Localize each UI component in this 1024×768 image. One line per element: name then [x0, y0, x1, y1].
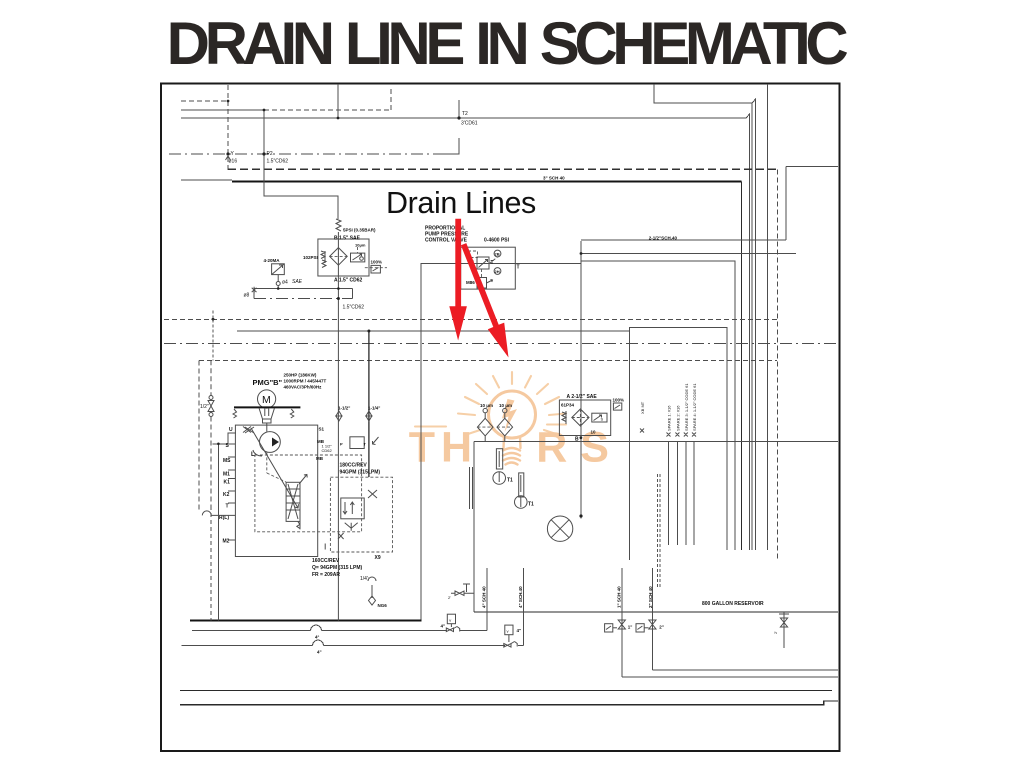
svg-text:2B: 2B [495, 252, 500, 257]
svg-text:T1: T1 [528, 502, 534, 508]
svg-text:0-4600 PSI: 0-4600 PSI [484, 238, 510, 244]
svg-text:L: L [251, 452, 255, 458]
svg-text:4": 4" [441, 624, 446, 629]
svg-text:Y: Y [506, 629, 509, 634]
svg-text:10: 10 [591, 430, 597, 435]
svg-text:SAE: SAE [292, 279, 303, 285]
svg-text:B: B [575, 437, 579, 443]
svg-text:ø8: ø8 [244, 293, 250, 299]
svg-text:4°: 4° [315, 635, 320, 640]
svg-text:K1: K1 [224, 480, 231, 486]
svg-text:Drain Lines: Drain Lines [386, 186, 536, 220]
svg-text:10 μm: 10 μm [480, 403, 493, 408]
svg-text:T: T [226, 504, 229, 510]
svg-text:460VAC/3Ph/60Hz: 460VAC/3Ph/60Hz [284, 385, 323, 390]
svg-text:2': 2' [773, 631, 778, 634]
svg-text:MS: MS [223, 458, 231, 464]
svg-text:10 μm: 10 μm [499, 403, 512, 408]
svg-text:1" SCH 40: 1" SCH 40 [616, 586, 621, 608]
svg-text:1": 1" [628, 625, 633, 630]
svg-text:2H: 2H [495, 269, 500, 274]
svg-text:Y: Y [231, 151, 235, 157]
svg-text:ø4: ø4 [282, 280, 288, 286]
svg-text:1.5"CD62: 1.5"CD62 [343, 305, 365, 311]
svg-text:T1: T1 [507, 478, 513, 484]
svg-text:Q= 94GPM (315 LPM): Q= 94GPM (315 LPM) [312, 565, 362, 571]
svg-text:100%: 100% [613, 398, 625, 403]
svg-text:100%: 100% [371, 260, 383, 265]
svg-text:4" SCH 40: 4" SCH 40 [482, 586, 487, 608]
svg-text:4" SCH.40: 4" SCH.40 [518, 586, 523, 608]
svg-text:RS: RS [536, 424, 622, 472]
svg-text:PMG"B": PMG"B" [253, 378, 283, 387]
svg-text:SPARE 2: #16: SPARE 2: #16 [675, 405, 680, 431]
svg-text:MB: MB [316, 456, 324, 461]
svg-text:K2: K2 [223, 492, 230, 498]
svg-text:4": 4" [317, 650, 322, 655]
svg-text:102PSI: 102PSI [303, 255, 318, 260]
svg-text:S1: S1 [319, 427, 325, 432]
svg-text:T: T [364, 442, 367, 447]
svg-text:250HP (186KW): 250HP (186KW) [284, 373, 317, 378]
svg-text:1-1/4": 1-1/4" [368, 406, 380, 411]
svg-text:1000RPM / 445/447T: 1000RPM / 445/447T [284, 379, 327, 384]
svg-text:T: T [517, 265, 520, 271]
svg-text:5PSI (0.35BAR): 5PSI (0.35BAR) [343, 228, 376, 233]
svg-text:TH: TH [409, 424, 478, 472]
svg-text:T: T [491, 260, 494, 266]
svg-text:800 GALLON RESERVOIR: 800 GALLON RESERVOIR [702, 601, 764, 607]
svg-text:M: M [262, 394, 271, 406]
svg-text:2": 2" [659, 625, 664, 630]
svg-text:180CC/REV: 180CC/REV [340, 463, 368, 469]
svg-text:A 2-1/2" SAE: A 2-1/2" SAE [567, 394, 598, 400]
svg-text:1-1/2": 1-1/2" [338, 406, 350, 411]
svg-text:3" SCH 40: 3" SCH 40 [543, 176, 565, 181]
svg-text:4": 4" [517, 628, 522, 633]
svg-text:T2: T2 [462, 111, 468, 117]
svg-text:NG6: NG6 [378, 603, 388, 608]
svg-text:160CC/REV: 160CC/REV [312, 558, 340, 564]
svg-text:P: P [340, 442, 343, 447]
svg-text:Y: Y [449, 618, 452, 623]
svg-text:10μm: 10μm [355, 243, 366, 248]
svg-text:FR = 209AR: FR = 209AR [312, 572, 340, 578]
svg-text:XB MT: XB MT [640, 401, 645, 414]
svg-text:B 1.5" SAE: B 1.5" SAE [334, 236, 361, 242]
svg-text:2': 2' [448, 595, 451, 600]
svg-text:A 1.5" CD62: A 1.5" CD62 [334, 278, 363, 284]
svg-text:CD62: CD62 [322, 448, 333, 453]
svg-text:1.5"CD62: 1.5"CD62 [267, 159, 289, 165]
svg-text:SPARE 4: 1-1/2" CODE 61: SPARE 4: 1-1/2" CODE 61 [692, 383, 697, 431]
svg-text:1/2": 1/2" [200, 404, 209, 410]
svg-text:P2: P2 [267, 151, 273, 157]
svg-text:SPARE 1: #16: SPARE 1: #16 [667, 405, 672, 431]
svg-text:U: U [229, 427, 233, 433]
svg-text:2-1/2"SCH.40: 2-1/2"SCH.40 [649, 236, 678, 241]
svg-text:4-20MA: 4-20MA [264, 258, 281, 263]
svg-text:2" SCH 40: 2" SCH 40 [648, 586, 653, 608]
svg-text:61P34: 61P34 [561, 403, 575, 408]
svg-text:M1: M1 [223, 472, 230, 478]
svg-text:94GPM (315LPM): 94GPM (315LPM) [340, 470, 381, 476]
svg-text:X9: X9 [375, 555, 381, 561]
svg-text:M86: M86 [466, 280, 475, 285]
svg-text:CONTROL VALVE: CONTROL VALVE [425, 238, 468, 244]
svg-text:S: S [601, 417, 604, 422]
svg-text:SPARE 3: 1-1/2" CODE 61: SPARE 3: 1-1/2" CODE 61 [684, 383, 689, 431]
svg-text:3'CD61: 3'CD61 [461, 121, 478, 127]
